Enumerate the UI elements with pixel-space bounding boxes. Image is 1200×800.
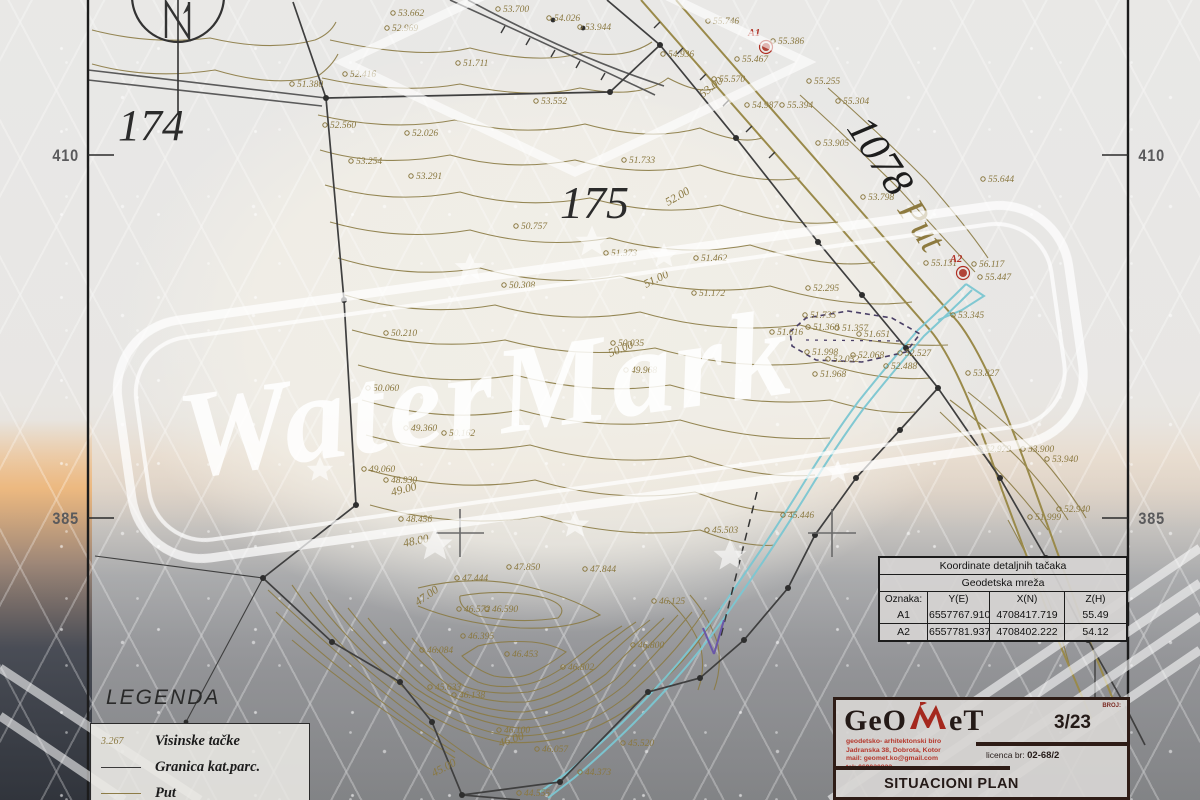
- spot-height: 49.360: [411, 424, 437, 434]
- spot-height: 55.447: [985, 273, 1012, 283]
- situacioni-plan-sheet: 53.66252.96953.70054.02653.94454.93655.7…: [0, 0, 1200, 800]
- table-header-row: Oznaka:Y(E)X(N)Z(H): [880, 591, 1126, 607]
- spot-height: 53.552: [541, 97, 567, 107]
- spot-height: 55.255: [814, 77, 840, 87]
- spot-height: 54.936: [668, 50, 694, 60]
- divider: [976, 742, 1128, 746]
- logo-text-post: eT: [949, 704, 984, 738]
- table-column-header: Y(E): [927, 592, 989, 607]
- spot-height: 47.444: [462, 574, 488, 584]
- spot-height: 51.733: [629, 156, 655, 166]
- contour-label: 51.00: [642, 268, 671, 290]
- spot-height: 51.711: [463, 59, 488, 69]
- spot-height: 51.616: [777, 328, 803, 338]
- spot-height: 53.662: [398, 9, 424, 19]
- spot-height: 46.800: [638, 641, 664, 651]
- spot-height: 51.360: [813, 323, 839, 333]
- table-body: A16557767.9104708417.71955.49A26557781.9…: [880, 607, 1126, 640]
- spot-height: 45.446: [788, 511, 814, 521]
- spot-height: 50.757: [521, 222, 548, 232]
- spot-height: 44.555: [524, 789, 550, 799]
- spot-height: 47.844: [590, 565, 616, 575]
- contour-label: 47.00: [413, 584, 441, 609]
- coordinate-table: Koordinate detaljnih tačaka Geodetska mr…: [878, 556, 1128, 642]
- plan-title: SITUACIONI PLAN: [836, 776, 1067, 792]
- contour-lines: [92, 22, 1086, 770]
- spot-height: 53.940: [1052, 455, 1078, 465]
- spot-height: 46.802: [568, 663, 594, 673]
- spot-height: 51.172: [699, 289, 725, 299]
- spot-height: 50.308: [509, 281, 535, 291]
- logo-text-pre: GeO: [844, 704, 907, 738]
- spot-height: 54.026: [554, 14, 580, 24]
- edge-coordinate: 410: [52, 146, 79, 166]
- spot-height: 51.735: [810, 311, 836, 321]
- spot-height: 52.969: [392, 24, 418, 34]
- spot-height: 52.068: [858, 351, 884, 361]
- topographic-map: 53.66252.96953.70054.02653.94454.93655.7…: [0, 0, 1200, 800]
- parcel-number-labels: 1741751078Put: [118, 101, 954, 260]
- spot-height: 52.052: [833, 355, 859, 365]
- dashed-arrow: [703, 492, 757, 654]
- firm-line: geodetsko- arhitektonski biro: [846, 738, 941, 747]
- spot-height: 44.373: [585, 768, 611, 778]
- title-block: GeO eT geodetsko- arhitektonski biroJadr…: [833, 697, 1130, 800]
- sheet-frame: [88, 0, 1128, 800]
- divider: [835, 766, 1010, 770]
- spot-height: 55.394: [787, 101, 813, 111]
- table-row: A16557767.9104708417.71955.49: [880, 607, 1126, 623]
- legend-item: Put: [101, 780, 301, 800]
- legend-title: LEGENDA: [106, 686, 220, 710]
- control-point-label: A2: [949, 254, 963, 265]
- table-column-header: Z(H): [1064, 592, 1126, 607]
- spot-height: 52.527: [905, 349, 932, 359]
- control-point-label: A1: [747, 28, 760, 39]
- edge-coordinate: 385: [1138, 509, 1165, 529]
- spot-height: 51.968: [820, 370, 846, 380]
- licence-line: licenca br: 02-68/2: [986, 750, 1059, 761]
- spot-height: 48.456: [406, 515, 432, 525]
- spot-height: 45.520: [628, 739, 654, 749]
- spot-height: 55.467: [742, 55, 769, 65]
- legend: 3.267Visinske tačkeGranica kat.parc.Put: [90, 723, 310, 800]
- spot-height: 46.453: [512, 650, 538, 660]
- spot-height: 51.462: [701, 254, 727, 264]
- spot-height: 52.295: [813, 284, 839, 294]
- table-row: A26557781.9374708402.22254.12: [880, 623, 1126, 640]
- spot-height: 45.633: [435, 683, 461, 693]
- firm-line: Jadranska 38, Dobrota, Kotor: [846, 747, 941, 756]
- table-title: Koordinate detaljnih tačaka: [880, 558, 1126, 574]
- spot-height: 50.210: [391, 329, 417, 339]
- spot-height: 55.386: [778, 37, 804, 47]
- spot-height: 46.395: [468, 632, 494, 642]
- spot-height: 46.590: [492, 605, 518, 615]
- geomet-logo: GeO eT: [844, 702, 984, 738]
- firm-line: mail: geomet.ko@gmail.com: [846, 755, 941, 764]
- spot-height: 52.416: [350, 70, 376, 80]
- mountain-m-icon: [908, 702, 948, 730]
- plan-number: 3/23: [1054, 712, 1091, 734]
- spot-height: 55.304: [843, 97, 869, 107]
- spot-height: 53.291: [416, 172, 442, 182]
- table-subtitle: Geodetska mreža: [880, 575, 1126, 591]
- spot-height: 53.254: [356, 157, 382, 167]
- spot-height: 50.060: [373, 384, 399, 394]
- legend-item: Granica kat.parc.: [101, 754, 301, 780]
- table-column-header: X(N): [989, 592, 1064, 607]
- contour-label: 48.00: [402, 533, 430, 550]
- spot-height: 49.060: [369, 465, 395, 475]
- spot-height: 52.026: [412, 129, 438, 139]
- parcel-boundary: [95, 0, 1145, 800]
- spot-height: 53.827: [973, 369, 1000, 379]
- spot-height: 46.138: [459, 691, 485, 701]
- spot-height: 54.987: [752, 101, 779, 111]
- spot-height: 51.999: [1035, 513, 1061, 523]
- spot-height: 53.944: [585, 23, 611, 33]
- parcel-label: 1078: [838, 108, 922, 204]
- spot-height: 52.979: [985, 445, 1011, 455]
- spot-height: 46.084: [427, 646, 453, 656]
- edge-coordinate: 385: [52, 509, 79, 529]
- spot-height: 51.373: [611, 249, 637, 259]
- spot-height: 52.940: [1064, 505, 1090, 515]
- broj-label: BROJ:: [1102, 703, 1121, 709]
- spot-height: 53.700: [503, 5, 529, 15]
- legend-item: 3.267Visinske tačke: [101, 728, 301, 754]
- spot-height: 45.503: [712, 526, 738, 536]
- spot-height: 52.488: [891, 362, 917, 372]
- spot-height: 50.162: [449, 429, 475, 439]
- spot-height: 49.968: [631, 366, 657, 376]
- parcel-label: 174: [118, 101, 184, 150]
- spot-height: 47.850: [514, 563, 540, 573]
- spot-height: 46.125: [659, 597, 685, 607]
- contour-label: 46.00: [497, 730, 526, 749]
- spot-height: 51.651: [864, 330, 890, 340]
- spot-height: 46.057: [542, 745, 569, 755]
- contour-label: 52.00: [664, 185, 693, 208]
- spot-height: 53.345: [958, 311, 984, 321]
- boundary-nodes: [184, 18, 1091, 798]
- spot-height: 51.380: [297, 80, 323, 90]
- spot-height: 53.900: [1028, 445, 1054, 455]
- table-column-header: Oznaka:: [880, 592, 927, 607]
- spot-height: 56.117: [979, 260, 1006, 270]
- spot-height: 55.746: [713, 17, 739, 27]
- north-arrow-icon: [132, 0, 224, 115]
- spot-height: 52.560: [330, 121, 356, 131]
- spot-height: 55.644: [988, 175, 1014, 185]
- edge-coordinate: 410: [1138, 146, 1165, 166]
- parcel-label: 175: [560, 177, 629, 228]
